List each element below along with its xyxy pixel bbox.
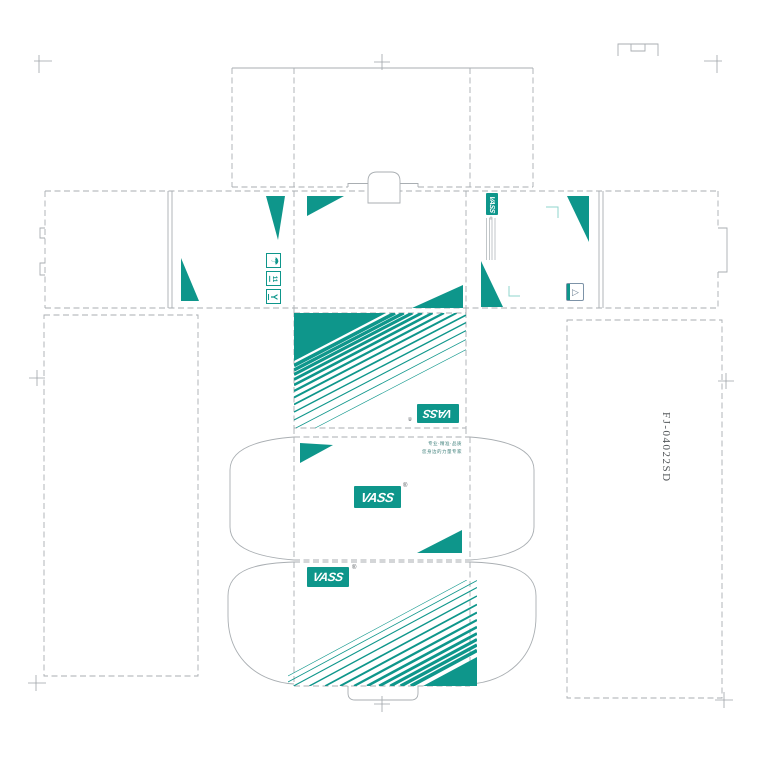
dieline-linework <box>0 0 779 779</box>
brand-logo: VASS <box>354 486 401 508</box>
left-side-panel <box>44 315 198 676</box>
fragile-icon: Y <box>266 289 281 304</box>
stripe-pattern-front <box>288 580 477 686</box>
slogan-line-2: 您身边的力量专家 <box>404 449 462 457</box>
keep-dry-icon: ☂ <box>266 253 281 268</box>
side-wall-band <box>40 191 727 308</box>
top-lid-flap <box>232 44 658 187</box>
brand-logo-text: VASS <box>423 408 454 420</box>
brand-logo-vertical: VASS <box>486 193 498 215</box>
dieline-sheet: VASS ® VASS ® VASS ® VASS ® ☂ 11 Y ▷ 专业·… <box>0 0 779 779</box>
brand-logo-rotated: VASS <box>417 404 459 423</box>
manufacturer-fine-print <box>486 218 497 260</box>
product-code: FJ-04022SD <box>660 412 672 507</box>
certification-icon-triangle: ▷ <box>572 287 579 297</box>
stacking-limit-icon: 11 <box>266 271 281 286</box>
slogan-line-1: 专业·精准·品质 <box>404 441 462 449</box>
handle-cutout <box>348 172 418 203</box>
brand-logo-text: VASS <box>312 570 344 584</box>
registered-trademark: ® <box>352 565 356 571</box>
registered-trademark: ® <box>408 415 412 421</box>
brand-slogan: 专业·精准·品质 您身边的力量专家 <box>404 441 462 457</box>
certification-icon: ▷ <box>566 283 584 301</box>
brand-logo-text: VASS <box>360 490 395 505</box>
registered-trademark: ® <box>403 483 407 489</box>
right-side-panel <box>567 320 722 698</box>
certification-icon-spine <box>567 284 570 300</box>
brand-logo: VASS <box>307 567 349 587</box>
crop-marks <box>28 54 734 712</box>
corner-brackets <box>509 207 558 296</box>
brand-logo-text: VASS <box>489 195 496 213</box>
